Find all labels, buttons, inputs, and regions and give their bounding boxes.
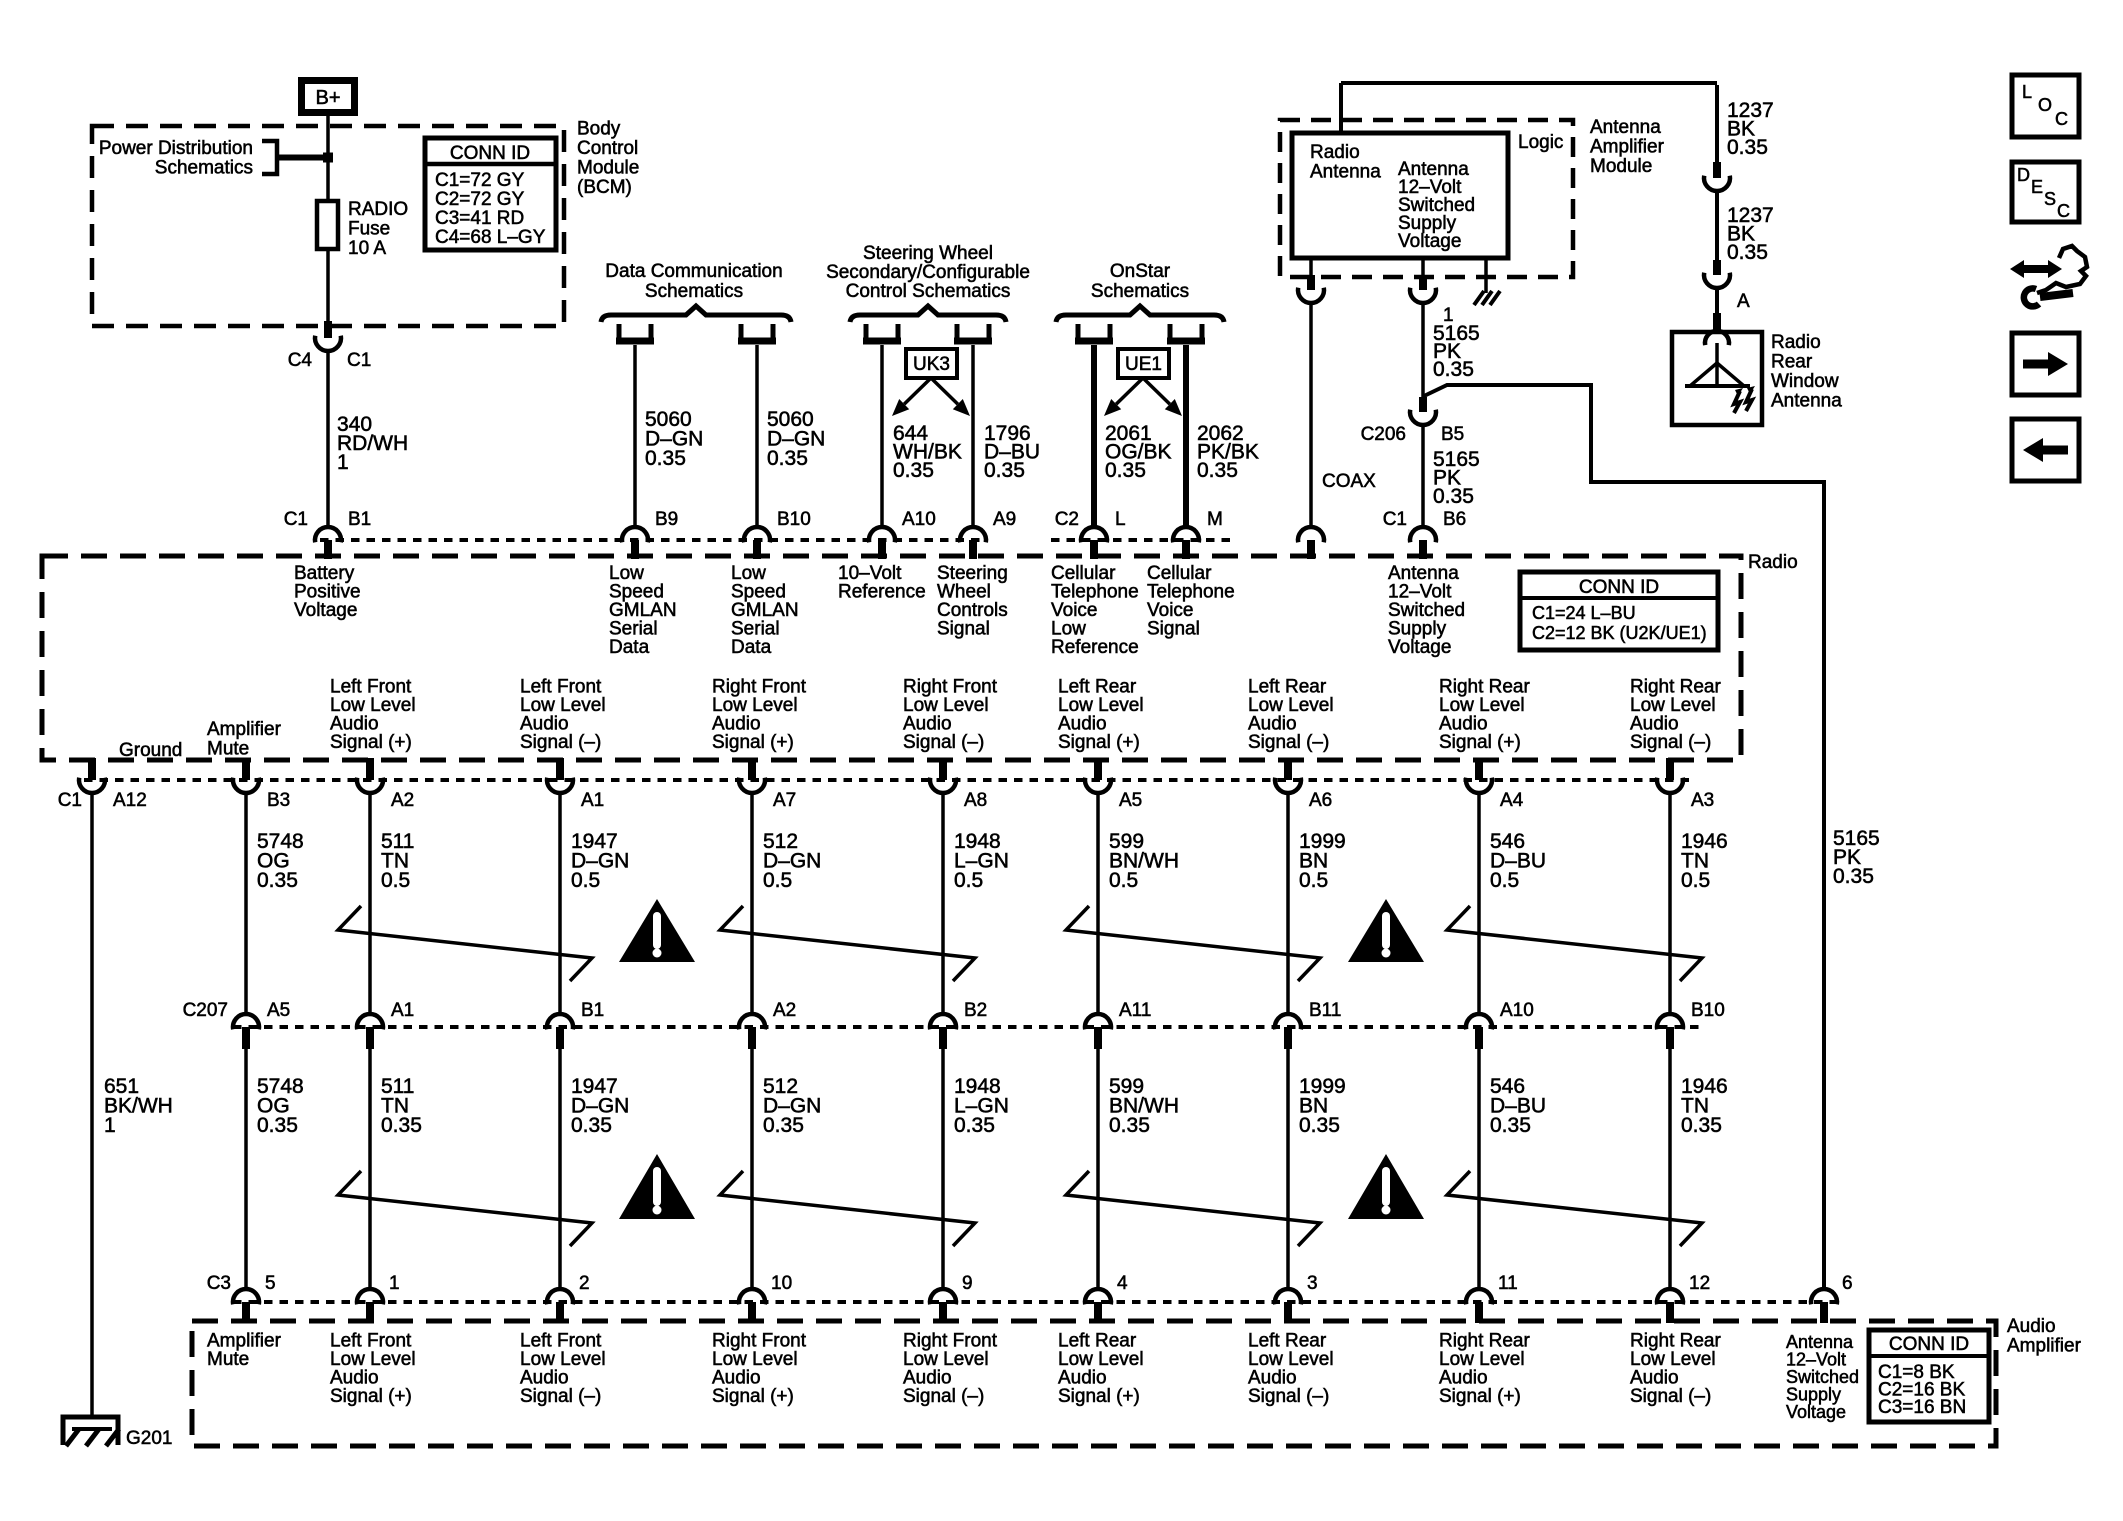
svg-text:A10: A10 xyxy=(902,509,936,530)
svg-text:Signal (+): Signal (+) xyxy=(712,732,794,753)
svg-text:Audio: Audio xyxy=(2007,1316,2056,1337)
svg-text:0.5: 0.5 xyxy=(954,869,983,892)
svg-text:1: 1 xyxy=(389,1273,400,1294)
svg-text:C2=72 GY: C2=72 GY xyxy=(435,189,525,210)
svg-text:0.35: 0.35 xyxy=(1727,136,1768,159)
svg-text:C3=41 RD: C3=41 RD xyxy=(435,208,524,229)
svg-text:Antenna: Antenna xyxy=(1310,162,1381,183)
svg-text:C2=12 BK (U2K/UE1): C2=12 BK (U2K/UE1) xyxy=(1532,623,1707,643)
svg-text:9: 9 xyxy=(962,1273,973,1294)
svg-text:Signal (+): Signal (+) xyxy=(1439,1386,1521,1407)
svg-text:A2: A2 xyxy=(391,790,414,811)
svg-text:A4: A4 xyxy=(1500,790,1524,811)
svg-text:1: 1 xyxy=(337,451,349,474)
svg-text:Signal (+): Signal (+) xyxy=(330,732,412,753)
svg-text:Amplifier: Amplifier xyxy=(207,719,282,740)
svg-text:Antenna: Antenna xyxy=(1590,117,1661,138)
svg-text:C206: C206 xyxy=(1361,424,1406,445)
svg-text:B6: B6 xyxy=(1443,509,1466,530)
svg-text:A2: A2 xyxy=(773,1000,796,1021)
svg-text:E: E xyxy=(2031,177,2043,197)
svg-text:0.35: 0.35 xyxy=(1490,1114,1531,1137)
svg-text:0.35: 0.35 xyxy=(1433,485,1474,508)
svg-text:0.5: 0.5 xyxy=(1109,869,1138,892)
svg-text:A5: A5 xyxy=(1119,790,1142,811)
svg-text:Ground: Ground xyxy=(119,740,182,761)
svg-text:1: 1 xyxy=(104,1114,116,1137)
svg-text:UK3: UK3 xyxy=(913,354,950,375)
svg-text:COAX: COAX xyxy=(1322,471,1376,492)
svg-text:D: D xyxy=(2017,165,2030,185)
svg-text:CONN ID: CONN ID xyxy=(450,143,530,164)
svg-text:Voltage: Voltage xyxy=(1388,637,1451,658)
svg-text:UE1: UE1 xyxy=(1125,354,1162,375)
svg-text:OnStar: OnStar xyxy=(1110,261,1171,282)
svg-text:Steering Wheel: Steering Wheel xyxy=(863,243,993,264)
svg-text:Schematics: Schematics xyxy=(1091,281,1189,302)
svg-text:Signal: Signal xyxy=(937,619,990,640)
svg-text:C3=16 BN: C3=16 BN xyxy=(1878,1397,1966,1418)
svg-text:Schematics: Schematics xyxy=(645,281,743,302)
svg-text:0.35: 0.35 xyxy=(1833,865,1874,888)
svg-text:B10: B10 xyxy=(777,509,811,530)
svg-text:5: 5 xyxy=(265,1273,276,1294)
svg-text:0.5: 0.5 xyxy=(381,869,410,892)
svg-text:Rear: Rear xyxy=(1771,352,1813,373)
svg-text:C2: C2 xyxy=(1055,509,1079,530)
svg-text:Logic: Logic xyxy=(1518,132,1563,153)
svg-text:RADIO: RADIO xyxy=(348,199,408,220)
svg-text:B10: B10 xyxy=(1691,1000,1725,1021)
svg-text:CONN ID: CONN ID xyxy=(1889,1334,1969,1355)
svg-text:Signal (+): Signal (+) xyxy=(712,1386,794,1407)
svg-text:2: 2 xyxy=(579,1273,590,1294)
svg-text:A1: A1 xyxy=(391,1000,414,1021)
svg-text:Data: Data xyxy=(731,637,772,658)
svg-text:C1: C1 xyxy=(347,350,371,371)
svg-text:B9: B9 xyxy=(655,509,678,530)
svg-text:S: S xyxy=(2044,189,2056,209)
svg-text:Reference: Reference xyxy=(1051,637,1139,658)
svg-text:C1: C1 xyxy=(284,509,308,530)
svg-text:Radio: Radio xyxy=(1310,142,1360,163)
svg-text:C: C xyxy=(2057,201,2070,221)
svg-text:0.35: 0.35 xyxy=(257,1114,298,1137)
svg-text:Signal: Signal xyxy=(1147,619,1200,640)
svg-text:A: A xyxy=(1737,291,1750,312)
svg-text:Control Schematics: Control Schematics xyxy=(846,281,1011,302)
svg-text:0.35: 0.35 xyxy=(1299,1114,1340,1137)
svg-text:Signal (–): Signal (–) xyxy=(1248,732,1329,753)
svg-text:Voltage: Voltage xyxy=(294,600,357,621)
svg-text:0.5: 0.5 xyxy=(571,869,600,892)
svg-text:0.35: 0.35 xyxy=(763,1114,804,1137)
svg-text:Schematics: Schematics xyxy=(155,158,253,179)
svg-text:C1=24 L–BU: C1=24 L–BU xyxy=(1532,603,1636,623)
svg-text:0.35: 0.35 xyxy=(1681,1114,1722,1137)
svg-text:L: L xyxy=(2022,82,2032,102)
svg-text:0.35: 0.35 xyxy=(1433,358,1474,381)
svg-text:0.35: 0.35 xyxy=(381,1114,422,1137)
svg-text:Mute: Mute xyxy=(207,1349,249,1370)
svg-text:O: O xyxy=(2038,95,2052,115)
svg-text:0.5: 0.5 xyxy=(763,869,792,892)
svg-text:Signal (–): Signal (–) xyxy=(903,732,984,753)
svg-text:Voltage: Voltage xyxy=(1398,231,1461,252)
svg-text:Module: Module xyxy=(577,158,639,179)
svg-text:Radio: Radio xyxy=(1771,332,1821,353)
svg-text:G201: G201 xyxy=(126,1428,172,1449)
svg-text:0.5: 0.5 xyxy=(1681,869,1710,892)
svg-text:0.35: 0.35 xyxy=(1109,1114,1150,1137)
svg-text:A5: A5 xyxy=(267,1000,290,1021)
svg-text:6: 6 xyxy=(1842,1273,1853,1294)
svg-text:Signal (–): Signal (–) xyxy=(1630,1386,1711,1407)
svg-text:C1: C1 xyxy=(1383,509,1407,530)
svg-text:0.35: 0.35 xyxy=(984,459,1025,482)
svg-text:M: M xyxy=(1207,509,1223,530)
svg-text:A6: A6 xyxy=(1309,790,1332,811)
svg-text:Signal (+): Signal (+) xyxy=(1439,732,1521,753)
svg-text:A9: A9 xyxy=(993,509,1016,530)
svg-text:B2: B2 xyxy=(964,1000,987,1021)
svg-text:Voltage: Voltage xyxy=(1786,1402,1846,1422)
svg-text:11: 11 xyxy=(1498,1273,1518,1294)
svg-text:Body: Body xyxy=(577,119,621,140)
svg-text:0.5: 0.5 xyxy=(1299,869,1328,892)
svg-text:B5: B5 xyxy=(1441,424,1464,445)
svg-text:A3: A3 xyxy=(1691,790,1714,811)
svg-text:Signal (+): Signal (+) xyxy=(1058,732,1140,753)
svg-text:Signal (+): Signal (+) xyxy=(330,1386,412,1407)
svg-text:C1: C1 xyxy=(58,790,82,811)
svg-text:A8: A8 xyxy=(964,790,987,811)
svg-text:10: 10 xyxy=(771,1273,792,1294)
svg-text:0.35: 0.35 xyxy=(1197,459,1238,482)
svg-text:Mute: Mute xyxy=(207,739,249,760)
svg-text:Signal (+): Signal (+) xyxy=(1058,1386,1140,1407)
svg-text:Amplifier: Amplifier xyxy=(1590,137,1665,158)
svg-text:CONN ID: CONN ID xyxy=(1579,577,1659,598)
svg-text:Radio: Radio xyxy=(1748,552,1798,573)
svg-text:Signal (–): Signal (–) xyxy=(520,732,601,753)
svg-text:10 A: 10 A xyxy=(348,238,386,259)
svg-text:A7: A7 xyxy=(773,790,796,811)
svg-text:Amplifier: Amplifier xyxy=(2007,1336,2082,1357)
svg-text:Signal (–): Signal (–) xyxy=(1630,732,1711,753)
svg-text:0.35: 0.35 xyxy=(767,447,808,470)
svg-text:0.35: 0.35 xyxy=(954,1114,995,1137)
svg-text:Fuse: Fuse xyxy=(348,219,390,240)
svg-text:A10: A10 xyxy=(1500,1000,1534,1021)
svg-text:B3: B3 xyxy=(267,790,290,811)
svg-text:Data: Data xyxy=(609,637,650,658)
svg-text:B1: B1 xyxy=(348,509,371,530)
svg-text:0.5: 0.5 xyxy=(1490,869,1519,892)
svg-text:Window: Window xyxy=(1771,371,1839,392)
svg-text:A11: A11 xyxy=(1119,1000,1151,1021)
svg-text:C1=72 GY: C1=72 GY xyxy=(435,170,525,191)
svg-text:C3: C3 xyxy=(207,1273,231,1294)
svg-text:(BCM): (BCM) xyxy=(577,177,632,198)
svg-text:0.35: 0.35 xyxy=(645,447,686,470)
svg-text:A12: A12 xyxy=(113,790,147,811)
svg-text:3: 3 xyxy=(1307,1273,1318,1294)
svg-text:Secondary/Configurable: Secondary/Configurable xyxy=(826,262,1030,283)
svg-text:Power Distribution: Power Distribution xyxy=(99,138,253,159)
svg-text:A1: A1 xyxy=(581,790,604,811)
svg-text:C207: C207 xyxy=(183,1000,228,1021)
svg-text:0.35: 0.35 xyxy=(571,1114,612,1137)
svg-text:C4=68 L–GY: C4=68 L–GY xyxy=(435,227,546,248)
svg-text:B11: B11 xyxy=(1309,1000,1341,1021)
svg-text:0.35: 0.35 xyxy=(893,459,934,482)
svg-text:4: 4 xyxy=(1117,1273,1128,1294)
svg-text:C4: C4 xyxy=(288,350,313,371)
svg-text:Control: Control xyxy=(577,138,638,159)
svg-text:0.35: 0.35 xyxy=(1105,459,1146,482)
svg-text:B+: B+ xyxy=(315,87,340,109)
svg-text:Reference: Reference xyxy=(838,582,926,603)
svg-text:Signal (–): Signal (–) xyxy=(903,1386,984,1407)
svg-text:Signal (–): Signal (–) xyxy=(520,1386,601,1407)
svg-text:C: C xyxy=(2055,109,2068,129)
svg-text:Signal (–): Signal (–) xyxy=(1248,1386,1329,1407)
svg-text:B1: B1 xyxy=(581,1000,604,1021)
svg-text:L: L xyxy=(1115,509,1126,530)
svg-text:0.35: 0.35 xyxy=(257,869,298,892)
svg-text:Antenna: Antenna xyxy=(1771,391,1842,412)
svg-text:Module: Module xyxy=(1590,156,1652,177)
svg-text:0.35: 0.35 xyxy=(1727,241,1768,264)
svg-text:12: 12 xyxy=(1689,1273,1710,1294)
svg-text:Data Communication: Data Communication xyxy=(605,261,782,282)
